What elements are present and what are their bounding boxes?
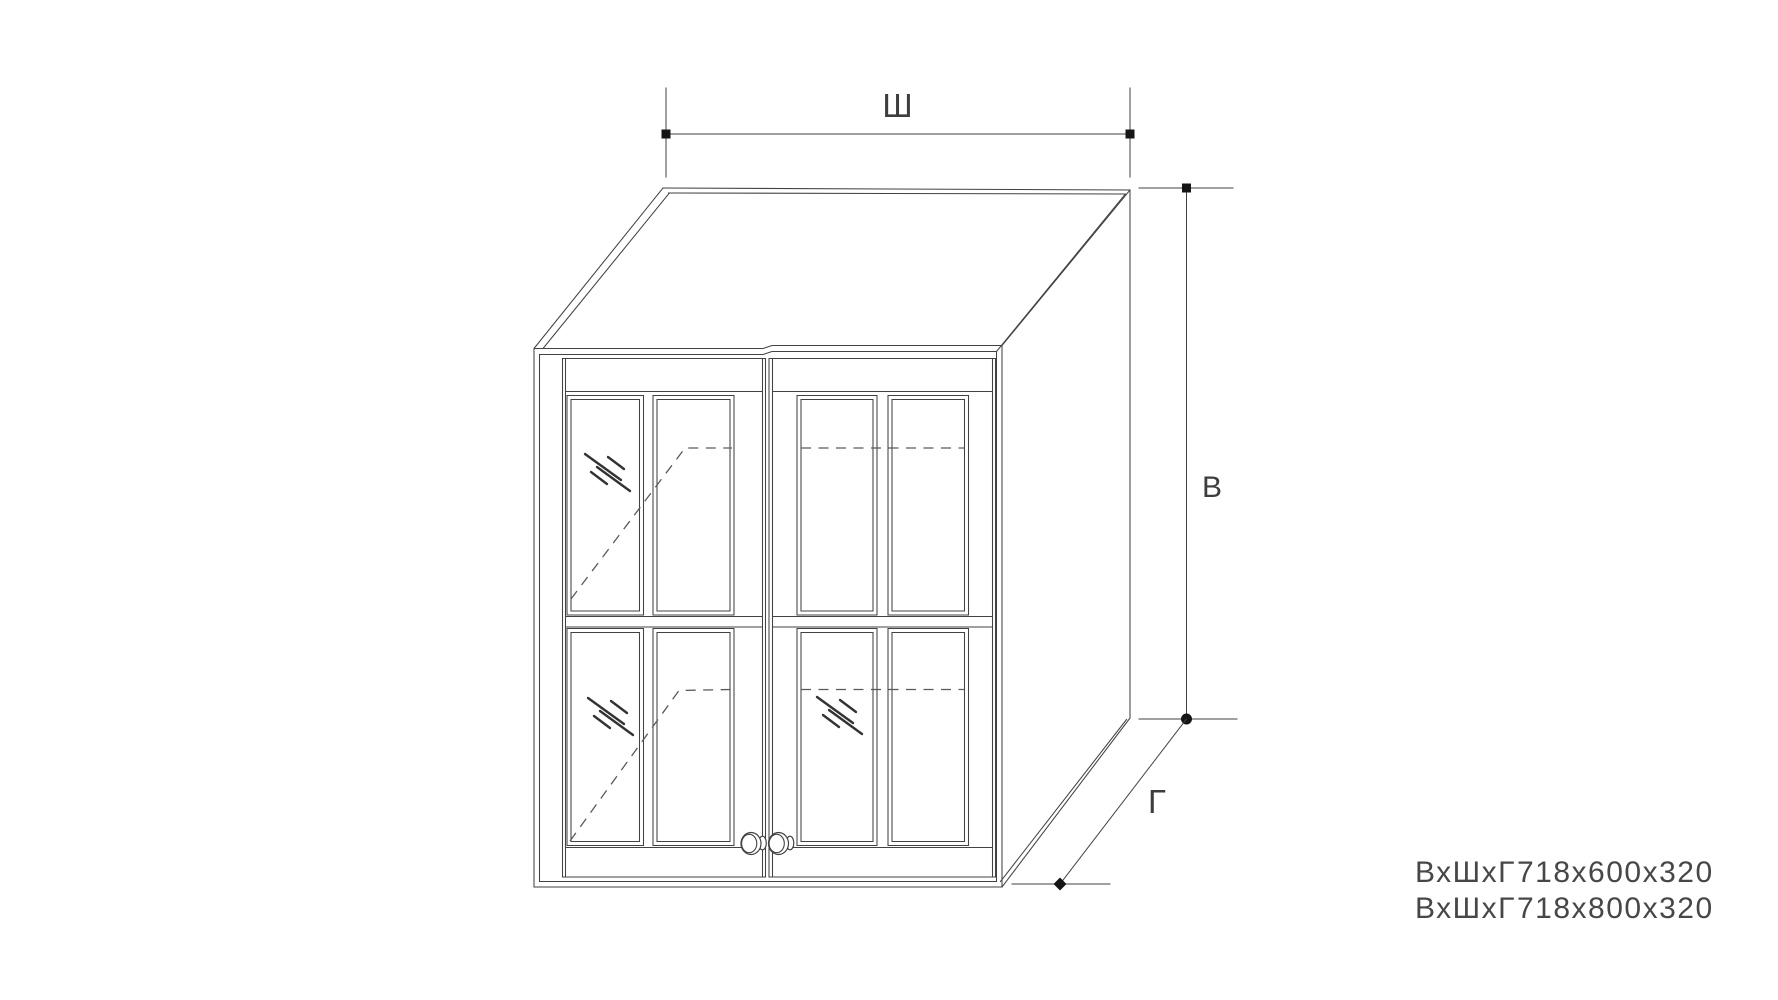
dimension-height: В	[1139, 184, 1237, 725]
depth-label: Г	[1148, 783, 1167, 820]
spec-line1-prefix: ВхШхГ	[1415, 856, 1516, 889]
spec-line2-prefix: ВхШхГ	[1415, 892, 1516, 925]
depth-marker-bottom-diamond	[1054, 878, 1067, 891]
glass-mark-lower-right	[817, 697, 862, 734]
width-marker-left-square	[662, 130, 671, 139]
cabinet-side-face	[1001, 190, 1131, 887]
cabinet-top-face	[534, 188, 1130, 352]
spec-line1-value: 718х600х320	[1517, 856, 1714, 889]
glass-marks	[585, 454, 862, 735]
spec-line2-value: 718х800х320	[1517, 892, 1714, 925]
left-door	[563, 359, 766, 878]
width-label: Ш	[882, 87, 913, 124]
right-door-glass-panes	[797, 396, 969, 846]
width-marker-right-square	[1126, 130, 1135, 139]
left-door-glass-panes	[567, 396, 734, 846]
drawing-canvas: Ш В Г ВхШхГ 718х600х320 ВхШхГ 718х800х32…	[0, 0, 1778, 1000]
height-marker-top-square	[1182, 184, 1191, 193]
door-knobs	[741, 833, 794, 855]
size-specifications: ВхШхГ 718х600х320 ВхШхГ 718х800х320	[1415, 856, 1714, 925]
glass-mark-lower-left	[588, 698, 633, 735]
right-door-knob	[769, 833, 794, 855]
dimension-depth: Г	[1012, 719, 1187, 891]
height-label: В	[1202, 471, 1223, 504]
right-door	[769, 359, 996, 878]
dimension-width: Ш	[662, 87, 1135, 177]
shelf-hidden-lines	[570, 448, 965, 841]
glass-mark-upper-left	[585, 454, 630, 491]
cabinet-technical-diagram: Ш В Г ВхШхГ 718х600х320 ВхШхГ 718х800х32…	[0, 0, 1778, 1000]
